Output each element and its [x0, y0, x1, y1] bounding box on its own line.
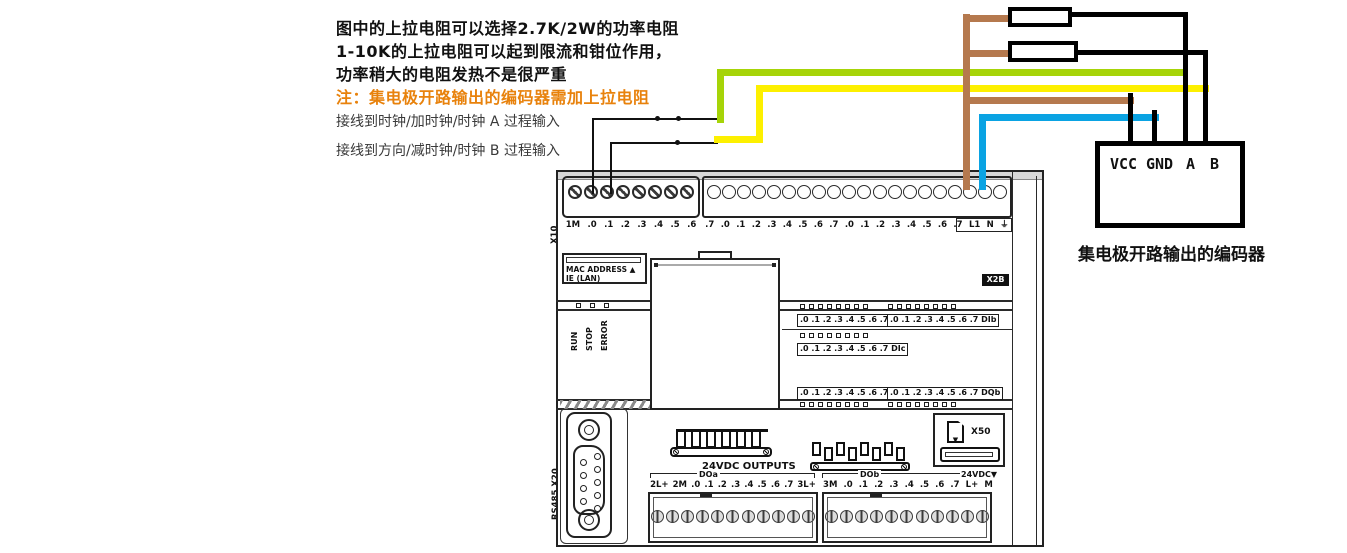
expansion-comb-1: [676, 429, 768, 448]
db9-pin-icon: [580, 459, 587, 466]
terminal-label: L1: [969, 221, 980, 230]
io-led-icon: [942, 304, 947, 309]
terminal-hole-icon: [842, 185, 856, 199]
terminal-label: .5: [920, 481, 929, 490]
terminal-hole-icon: [918, 185, 932, 199]
terminal-label: .4: [905, 481, 914, 490]
sd-slot-inner: [945, 452, 993, 457]
comb-prong-icon: [836, 442, 845, 456]
junction-dot: [655, 116, 660, 121]
led-row-dqb: [888, 402, 956, 407]
wire-yellow-b-vertical: [756, 85, 763, 143]
encoder-pin-b-lead: [1203, 50, 1208, 143]
clock-b-wiring-label: 接线到方向/减时钟/时钟 B 过程输入: [336, 140, 560, 160]
terminal-labels-block2: .7.0.1.2.3.4.5.6.7.0.1.2.3.4.5.6.7L1N⏚: [702, 221, 1012, 230]
screw-terminal-icon: [568, 185, 582, 199]
status-led-icon: [576, 303, 581, 308]
db9-pin-icon: [594, 466, 601, 473]
clock-a-wiring-label: 接线到时钟/加时钟/时钟 A 过程输入: [336, 111, 560, 131]
io-led-icon: [854, 333, 859, 338]
terminal-label: .0: [844, 481, 853, 490]
io-led-icon: [818, 304, 823, 309]
io-led-icon: [836, 333, 841, 338]
comb-prong-icon: [884, 442, 893, 456]
terminal-label: ⏚: [1000, 221, 1009, 230]
terminal-labels-block1: 1M.0.1.2.3.4.5.6: [562, 221, 700, 230]
comb-prong-icon: [824, 447, 833, 461]
terminal-hole-icon: [782, 185, 796, 199]
note-warning: 注：集电极开路输出的编码器需加上拉电阻: [336, 84, 650, 108]
wire-green-a-horizontal: [717, 69, 1188, 76]
terminal-label: .6: [814, 221, 823, 230]
io-label-box-dqb: .0 .1 .2 .3 .4 .5 .6 .7 DQb: [887, 387, 1003, 400]
mac-address-label: MAC ADDRESS ▲: [566, 265, 635, 274]
screw-terminal-icon: [584, 185, 598, 199]
port-label-x2b: X2B: [982, 274, 1009, 286]
group-label-dob: DOb: [858, 470, 881, 479]
lead-wire-b-horizontal: [610, 142, 718, 144]
encoder-pin-label: VCC: [1110, 155, 1146, 173]
io-led-icon: [915, 402, 920, 407]
io-led-icon: [836, 304, 841, 309]
terminal-label: 3M: [823, 481, 837, 490]
io-led-icon: [818, 333, 823, 338]
terminal-label: .5: [671, 221, 680, 230]
strip-tab: [870, 493, 882, 497]
terminal-label: 1M: [566, 221, 580, 230]
lead-wire-a-vertical: [592, 118, 594, 194]
terminal-label: .5: [798, 221, 807, 230]
terminal-label: .5: [758, 481, 767, 490]
case-rail-right: [1036, 176, 1037, 545]
io-led-icon: [915, 304, 920, 309]
db9-screw-top-inner: [584, 425, 594, 435]
pullup-resistor-1: [1008, 7, 1072, 27]
io-led-icon: [827, 333, 832, 338]
terminal-label: .4: [907, 221, 916, 230]
wire-green-a-vertical: [717, 69, 724, 123]
wire-blue-gnd-vertical: [979, 114, 986, 190]
terminal-label: .5: [922, 221, 931, 230]
strip-tab: [700, 493, 712, 497]
io-led-icon: [845, 304, 850, 309]
terminal-label: .1: [604, 221, 613, 230]
terminal-hole-icon: [722, 185, 736, 199]
terminal-label: .7: [829, 221, 838, 230]
terminal-hole-icon: [797, 185, 811, 199]
terminal-label: .0: [691, 481, 700, 490]
io-led-icon: [809, 402, 814, 407]
db9-dsub-shell: [573, 445, 605, 515]
io-led-icon: [897, 304, 902, 309]
terminal-label: .3: [731, 481, 740, 490]
led-row-dia: [800, 304, 868, 309]
io-led-icon: [863, 333, 868, 338]
db9-pin-icon: [580, 498, 587, 505]
comb-slot-icon: [721, 432, 731, 448]
comb-prong-icon: [896, 447, 905, 461]
io-led-icon: [800, 304, 805, 309]
status-led-label: STOP: [585, 313, 600, 351]
screw-terminal-icon: [616, 185, 630, 199]
status-led-row: [576, 303, 609, 308]
encoder-pin-gnd-lead: [1152, 110, 1157, 143]
junction-dot: [676, 116, 681, 121]
group-label-doa: DOa: [697, 470, 720, 479]
terminal-label: .6: [687, 221, 696, 230]
status-led-label: ERROR: [600, 313, 615, 351]
terminal-label: .6: [771, 481, 780, 490]
port-label-x50: X50: [971, 427, 990, 437]
terminal-label: .7: [784, 481, 793, 490]
io-led-icon: [800, 402, 805, 407]
db9-pin-icon: [580, 472, 587, 479]
expansion-bar-1: [670, 447, 772, 457]
wire-brown-to-resistor2: [963, 50, 1010, 57]
sd-card-icon: ▼: [947, 421, 964, 443]
io-led-icon: [951, 402, 956, 407]
comb-prong-icon: [848, 447, 857, 461]
status-led-icon: [604, 303, 609, 308]
wiring-diagram: 图中的上拉电阻可以选择2.7K/2W的功率电阻 1-10K的上拉电阻可以起到限流…: [0, 0, 1347, 553]
db9-pin-icon: [594, 492, 601, 499]
terminal-label: .1: [704, 481, 713, 490]
io-led-icon: [827, 402, 832, 407]
db9-pin-icon: [594, 505, 601, 512]
encoder-pin-label: GND: [1146, 155, 1186, 173]
comb-slot-icon: [736, 432, 746, 448]
strip-inner-outline: [653, 497, 813, 538]
encoder-pin-labels: VCCGNDAB: [1110, 155, 1219, 173]
wire-yellow-b-horizontal: [756, 85, 1209, 92]
terminal-hole-icon: [903, 185, 917, 199]
status-led-icon: [590, 303, 595, 308]
expansion-comb-2: [812, 442, 910, 461]
terminal-label: .4: [783, 221, 792, 230]
case-seam-right: [1012, 172, 1013, 545]
sd-slot-box: ▼ X50: [933, 413, 1005, 467]
terminal-hole-icon: [812, 185, 826, 199]
io-led-icon: [924, 402, 929, 407]
io-label-box-dic: .0 .1 .2 .3 .4 .5 .6 .7 DIc: [797, 343, 908, 356]
led-row-dic: [800, 333, 868, 338]
db9-pin-icon: [580, 485, 587, 492]
io-led-icon: [933, 402, 938, 407]
vent-slots: [560, 400, 650, 409]
door-groove: [656, 264, 774, 266]
terminal-hole-icon: [737, 185, 751, 199]
io-led-icon: [897, 402, 902, 407]
io-led-icon: [942, 402, 947, 407]
resistor2-lead: [1078, 50, 1208, 55]
input-terminal-block-1: [562, 176, 700, 218]
comb-prong-icon: [872, 447, 881, 461]
terminal-label: 3L+: [797, 481, 815, 490]
comb-slot-icon: [706, 432, 716, 448]
comb-prong-icon: [860, 442, 869, 456]
io-led-icon: [854, 402, 859, 407]
led-row-dqa: [800, 402, 868, 407]
status-led-labels: RUNSTOPERROR: [570, 313, 615, 351]
terminal-label: .6: [938, 221, 947, 230]
io-led-icon: [854, 304, 859, 309]
terminal-label: .3: [891, 221, 900, 230]
terminal-label: .1: [859, 481, 868, 490]
door-latch-left: [654, 263, 658, 267]
encoder-pin-vcc-lead: [1128, 93, 1133, 143]
db9-screw-top: [578, 419, 600, 441]
terminal-label: .3: [767, 221, 776, 230]
terminal-label: .0: [845, 221, 854, 230]
screw-terminal-icon: [632, 185, 646, 199]
io-led-icon: [863, 402, 868, 407]
strip-inner-outline: [827, 497, 987, 538]
terminal-hole-icon: [993, 185, 1007, 199]
terminal-label: M: [984, 481, 992, 490]
terminal-hole-icon: [857, 185, 871, 199]
sd-slot-opening: [940, 447, 1000, 462]
mac-address-box: MAC ADDRESS ▲ IE (LAN): [562, 253, 647, 284]
ie-lan-label: IE (LAN): [566, 274, 600, 283]
encoder-pin-label: A: [1186, 155, 1210, 173]
terminal-hole-icon: [827, 185, 841, 199]
comb-prong-icon: [812, 442, 821, 456]
db9-connector: [566, 412, 612, 538]
note-line-2: 1-10K的上拉电阻可以起到限流和钳位作用，: [336, 38, 671, 62]
ethernet-door: [650, 258, 780, 410]
terminal-label: .6: [935, 481, 944, 490]
output-labels-right: 3M.0.1.2.3.4.5.6.7L+M: [820, 481, 996, 490]
io-led-icon: [906, 304, 911, 309]
terminal-label: .2: [718, 481, 727, 490]
terminal-label: 2M: [673, 481, 687, 490]
io-led-icon: [845, 333, 850, 338]
terminal-label: .4: [744, 481, 753, 490]
io-led-icon: [818, 402, 823, 407]
mac-address-bar: [566, 257, 641, 263]
output-supply-label: 24VDC▼: [960, 470, 998, 479]
wire-brown-to-encoder-vcc: [963, 97, 1134, 104]
terminal-label: L+: [966, 481, 979, 490]
io-led-icon: [924, 304, 929, 309]
status-led-label: RUN: [570, 313, 585, 351]
encoder-pin-a-lead: [1183, 12, 1188, 143]
terminal-hole-icon: [767, 185, 781, 199]
encoder-pin-label: B: [1210, 155, 1219, 173]
terminal-hole-icon: [948, 185, 962, 199]
terminal-label: .2: [621, 221, 630, 230]
io-led-icon: [809, 304, 814, 309]
comb-slot-icon: [691, 432, 701, 448]
junction-dot: [675, 140, 680, 145]
wire-yellow-b-jog: [714, 136, 763, 143]
screw-terminal-icon: [648, 185, 662, 199]
io-led-icon: [951, 304, 956, 309]
terminal-label: .0: [588, 221, 597, 230]
comb-slot-icon: [751, 432, 761, 448]
resistor1-lead: [1072, 12, 1188, 17]
terminal-label: .7: [950, 481, 959, 490]
encoder-caption: 集电极开路输出的编码器: [1078, 240, 1265, 265]
terminal-label: 2L+: [650, 481, 668, 490]
io-label-box-dib: .0 .1 .2 .3 .4 .5 .6 .7 DIb: [887, 314, 999, 327]
io-led-icon: [863, 304, 868, 309]
wire-brown-to-resistor1: [963, 15, 1010, 22]
terminal-label: N: [987, 221, 994, 230]
note-line-1: 图中的上拉电阻可以选择2.7K/2W的功率电阻: [336, 15, 679, 39]
note-line-3: 功率稍大的电阻发热不是很严重: [336, 61, 567, 85]
io-led-icon: [888, 304, 893, 309]
face-seam-mid: [782, 329, 1012, 330]
encoder-box: VCCGNDAB: [1095, 141, 1245, 228]
io-led-icon: [845, 402, 850, 407]
io-led-icon: [906, 402, 911, 407]
pullup-resistor-2: [1008, 41, 1078, 62]
terminal-label: .2: [874, 481, 883, 490]
terminal-hole-icon: [707, 185, 721, 199]
io-led-icon: [809, 333, 814, 338]
output-terminal-strip-right: [822, 492, 992, 543]
io-led-icon: [933, 304, 938, 309]
terminal-label: .4: [654, 221, 663, 230]
terminal-label: .7: [705, 221, 714, 230]
screw-terminal-icon: [680, 185, 694, 199]
outputs-bracket-left: [650, 473, 815, 478]
io-led-icon: [836, 402, 841, 407]
screw-terminal-icon: [664, 185, 678, 199]
db9-pin-icon: [594, 453, 601, 460]
io-led-icon: [888, 402, 893, 407]
io-led-icon: [827, 304, 832, 309]
terminal-hole-icon: [888, 185, 902, 199]
terminal-hole-icon: [752, 185, 766, 199]
terminal-label: .3: [889, 481, 898, 490]
output-labels-left: 2L+2M.0.1.2.3.4.5.6.73L+: [648, 481, 818, 490]
door-latch-right: [772, 263, 776, 267]
terminal-label: .7: [953, 221, 962, 230]
db9-screw-bottom-inner: [584, 515, 594, 525]
terminal-label: .3: [637, 221, 646, 230]
output-terminal-strip-left: [648, 492, 818, 543]
terminal-hole-icon: [933, 185, 947, 199]
terminal-label: .2: [876, 221, 885, 230]
terminal-label: .0: [721, 221, 730, 230]
terminal-label: .1: [860, 221, 869, 230]
lead-wire-b-vertical: [610, 142, 612, 194]
io-led-icon: [800, 333, 805, 338]
led-row-dib: [888, 304, 956, 309]
comb-slot-icon: [676, 432, 686, 448]
terminal-label: .2: [752, 221, 761, 230]
terminal-label: .1: [736, 221, 745, 230]
db9-pin-icon: [594, 479, 601, 486]
terminal-hole-icon: [873, 185, 887, 199]
